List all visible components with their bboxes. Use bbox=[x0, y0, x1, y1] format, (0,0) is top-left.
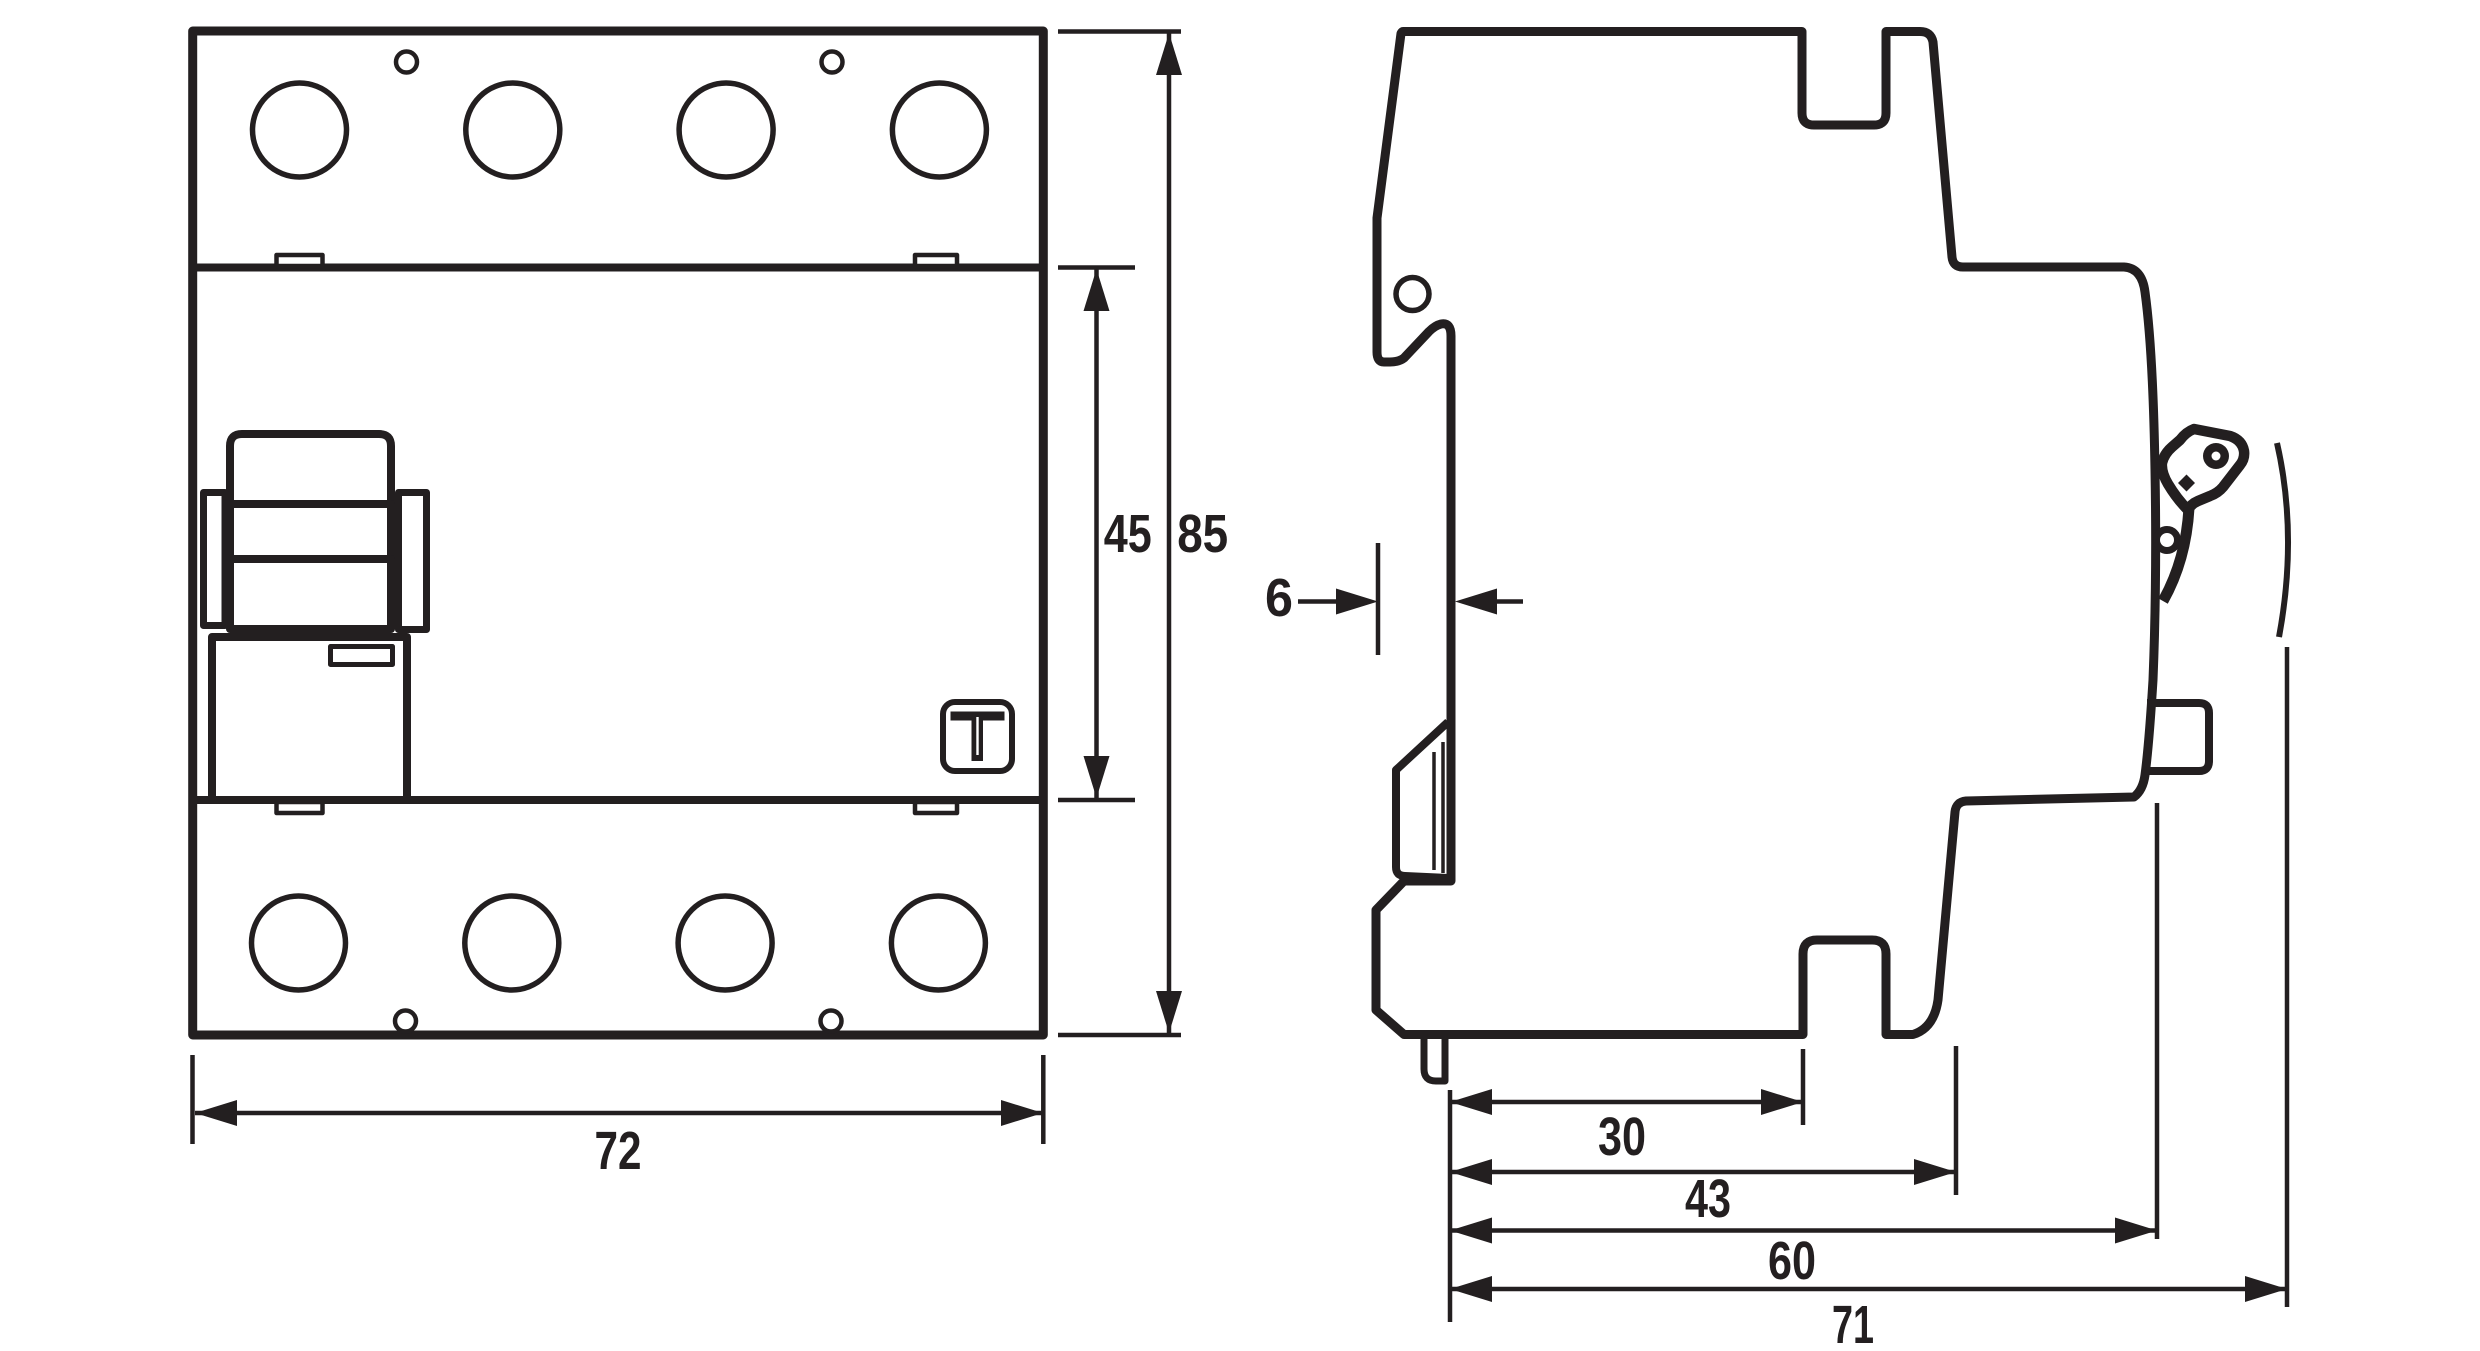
svg-text:43: 43 bbox=[1685, 1169, 1731, 1229]
svg-text:71: 71 bbox=[1832, 1295, 1874, 1351]
svg-text:45: 45 bbox=[1104, 504, 1152, 564]
svg-text:72: 72 bbox=[595, 1121, 642, 1181]
svg-text:60: 60 bbox=[1768, 1231, 1816, 1291]
svg-text:85: 85 bbox=[1177, 504, 1228, 564]
svg-text:30: 30 bbox=[1598, 1107, 1646, 1167]
svg-text:6: 6 bbox=[1265, 568, 1293, 628]
